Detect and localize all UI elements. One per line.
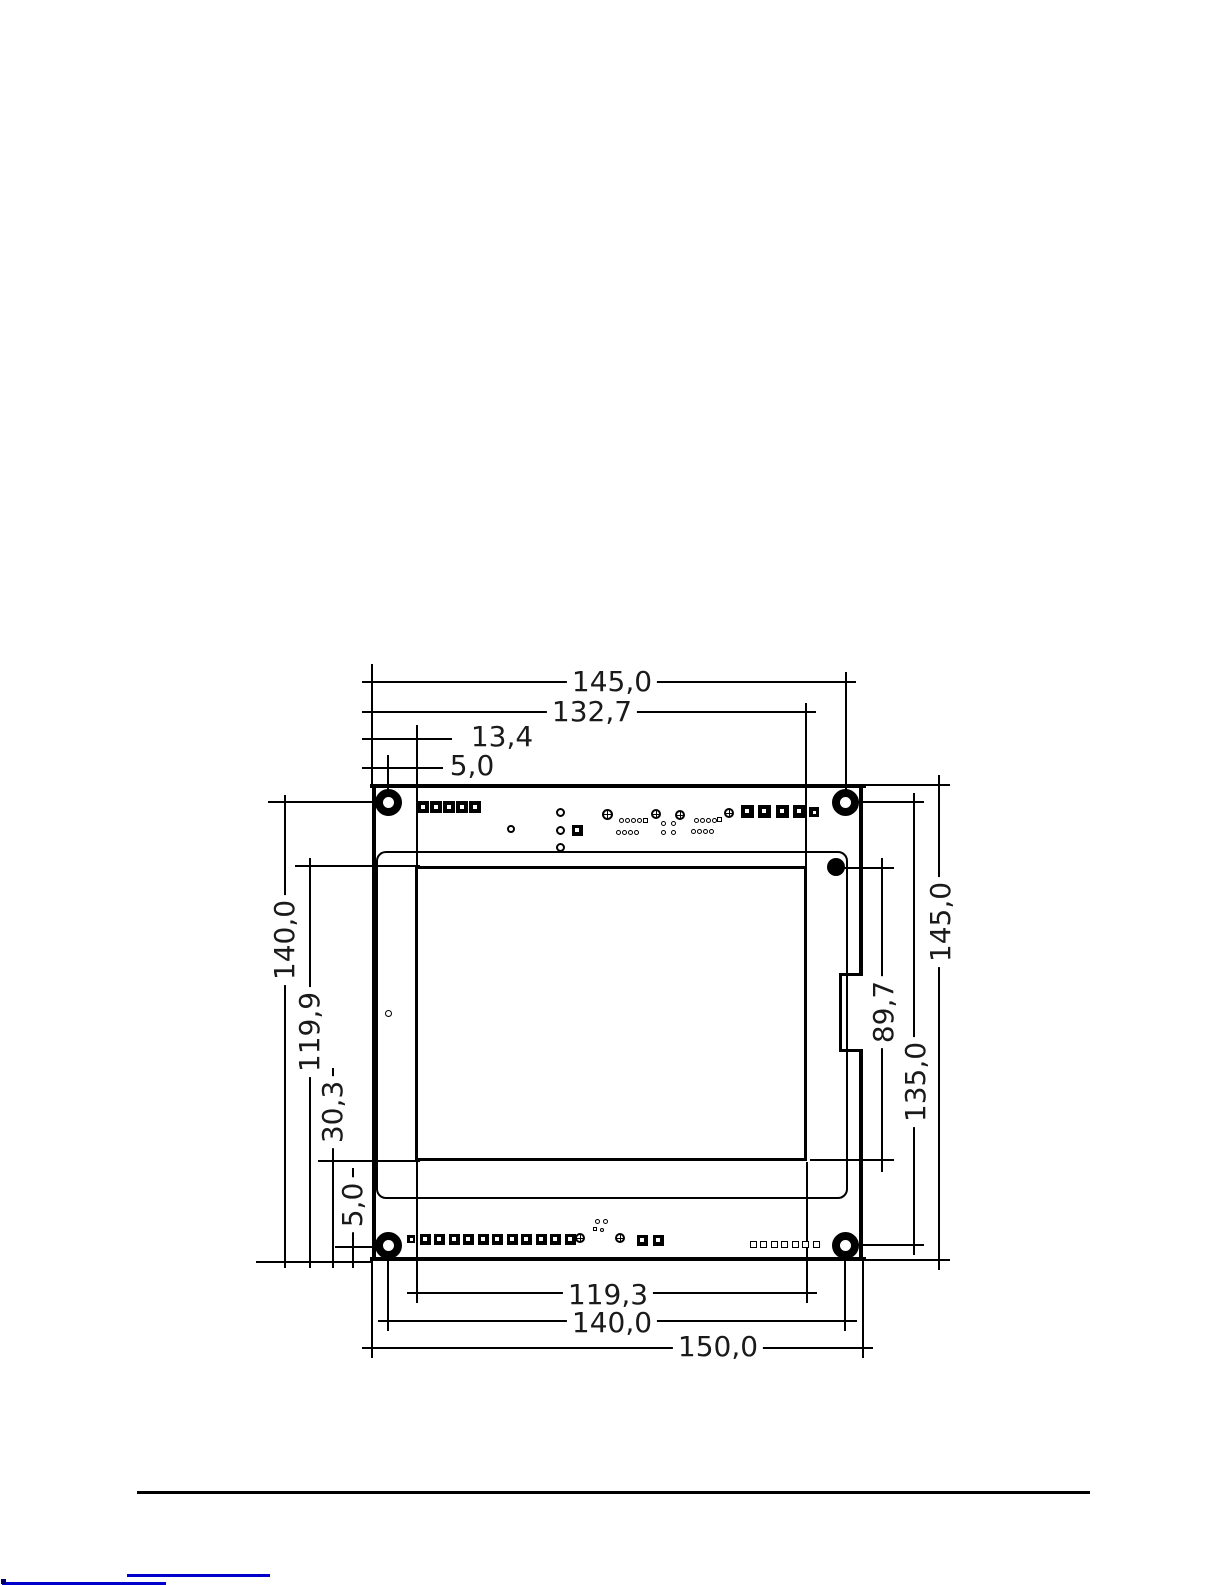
pad-round — [556, 808, 565, 817]
pad-round — [556, 826, 565, 835]
pad-square — [492, 1234, 503, 1245]
pad-square — [572, 825, 583, 836]
pad-hole — [421, 805, 425, 809]
via-square — [643, 818, 648, 823]
pad-square — [653, 1235, 664, 1246]
pad-hole — [473, 805, 477, 809]
ext-line — [806, 1162, 808, 1303]
pad-square — [430, 801, 442, 813]
dim-label-top-active-right: 132,7 — [547, 697, 637, 727]
board-edge-bottom — [370, 1257, 866, 1261]
via — [628, 830, 633, 835]
via — [671, 830, 676, 835]
pad-square — [469, 801, 481, 813]
board-edge-top — [370, 784, 866, 788]
pad-hole — [568, 1237, 572, 1241]
pad-hole — [539, 1237, 543, 1241]
via — [631, 818, 636, 823]
active-area-outline — [415, 866, 807, 1161]
via-square — [717, 817, 722, 822]
pad-square-small — [781, 1241, 788, 1248]
dim-label-top-hole-offset: 5,0 — [445, 751, 500, 781]
pad-round — [556, 843, 565, 852]
pad-hole — [466, 1237, 470, 1241]
pad-hole — [510, 1237, 514, 1241]
mounting-hole — [832, 789, 859, 816]
pad-square-small — [750, 1241, 757, 1248]
dim-label-top-active-left: 13,4 — [466, 722, 538, 752]
ext-line — [416, 1162, 418, 1303]
pad-square — [407, 1235, 415, 1243]
pad-cross-line — [580, 1235, 581, 1241]
mounting-hole — [375, 1232, 402, 1259]
dim-line-top-13-4 — [362, 738, 452, 740]
dim-label-left-active-bottom: 30,3 — [318, 1076, 348, 1148]
pad-hole — [423, 1237, 427, 1241]
pad-square — [449, 1234, 460, 1245]
ext-line — [256, 1261, 372, 1263]
pad-cross-line — [729, 810, 730, 816]
dim-label-left-active-top: 119,9 — [295, 987, 325, 1077]
pad-square — [809, 807, 819, 817]
pad-square — [776, 805, 789, 818]
pad-hole — [481, 1237, 485, 1241]
pad-crosshair — [675, 810, 685, 820]
pad-hole — [460, 805, 464, 809]
footer-link-underline[interactable] — [127, 1574, 270, 1577]
pad-square-small — [792, 1241, 799, 1248]
via — [622, 830, 627, 835]
via — [637, 818, 642, 823]
pad-square-small — [760, 1241, 767, 1248]
via — [661, 821, 666, 826]
dim-label-left-hole-span: 140,0 — [270, 895, 300, 985]
dim-line-right-145 — [938, 775, 940, 1270]
pad-hole — [745, 809, 749, 813]
pad-square — [741, 805, 754, 818]
pad-square — [550, 1234, 561, 1245]
pad-square — [758, 805, 771, 818]
pad-crosshair — [615, 1233, 625, 1243]
via — [619, 818, 624, 823]
via — [625, 818, 630, 823]
pad-square — [434, 1234, 445, 1245]
pad-square-small — [813, 1241, 820, 1248]
pad-round — [507, 825, 515, 833]
pad-hole — [762, 809, 766, 813]
pad-hole — [452, 1237, 456, 1241]
pad-cross-line — [607, 811, 608, 818]
via-square — [593, 1227, 597, 1231]
small-hole — [385, 1010, 392, 1017]
alignment-dot — [827, 858, 845, 876]
pad-square — [793, 805, 806, 818]
pad-hole — [640, 1238, 644, 1242]
via — [709, 829, 714, 834]
board-edge-right-lower — [859, 1049, 863, 1261]
pad-hole — [434, 805, 438, 809]
pad-square — [443, 801, 455, 813]
pad-hole — [553, 1237, 557, 1241]
via — [700, 818, 705, 823]
pad-hole — [797, 809, 801, 813]
ext-line — [862, 1261, 864, 1358]
pad-cross-line — [656, 811, 657, 817]
pad-square — [637, 1235, 648, 1246]
dim-line-bottom-150 — [362, 1347, 873, 1349]
pad-square-small — [771, 1241, 778, 1248]
pad-hole — [495, 1237, 499, 1241]
ext-line — [845, 672, 847, 800]
dim-line-right-135 — [913, 793, 915, 1255]
via — [603, 1219, 608, 1224]
dim-label-right-hole-span: 135,0 — [901, 1037, 931, 1127]
via — [595, 1219, 600, 1224]
board-edge-right-upper — [859, 784, 863, 975]
dim-label-left-hole-offset: 5,0 — [338, 1178, 368, 1233]
via — [697, 829, 702, 834]
ext-line — [295, 865, 420, 867]
mounting-hole — [375, 789, 402, 816]
pad-square — [521, 1234, 532, 1245]
pad-square — [565, 1234, 576, 1245]
pad-square — [456, 801, 468, 813]
pad-crosshair — [651, 809, 661, 819]
via — [600, 1228, 604, 1232]
ext-line — [805, 703, 807, 866]
dim-label-right-active-height: 89,7 — [869, 976, 899, 1048]
pad-crosshair — [602, 809, 613, 820]
pad-hole — [437, 1237, 441, 1241]
pad-hole — [524, 1237, 528, 1241]
pad-square — [507, 1234, 518, 1245]
via — [671, 821, 676, 826]
dim-label-bottom-board-width: 150,0 — [673, 1332, 763, 1362]
pad-crosshair — [724, 808, 734, 818]
via — [616, 830, 621, 835]
mounting-hole — [832, 1232, 859, 1259]
via — [703, 829, 708, 834]
ext-line — [416, 725, 418, 866]
pad-square — [478, 1234, 489, 1245]
ext-line — [371, 1261, 373, 1358]
pad-crosshair — [575, 1233, 585, 1243]
pad-hole — [575, 828, 579, 832]
ext-line — [843, 867, 894, 869]
page: 145,0132,713,45,0140,0119,930,35,089,713… — [0, 0, 1225, 1585]
ext-line — [844, 1248, 846, 1331]
footer-divider — [137, 1491, 1090, 1494]
pad-square-small — [802, 1241, 809, 1248]
pad-hole — [447, 805, 451, 809]
dim-line-left-140 — [284, 795, 286, 1268]
dim-line-top-5-0 — [362, 767, 443, 769]
dim-label-bottom-hole-span: 140,0 — [567, 1308, 657, 1338]
ext-line — [387, 1248, 389, 1331]
pad-hole — [410, 1238, 413, 1241]
footer-link-cut-mark — [1, 1579, 6, 1584]
pad-hole — [813, 811, 816, 814]
via — [661, 830, 666, 835]
via — [634, 830, 639, 835]
pad-hole — [780, 809, 784, 813]
pad-cross-line — [620, 1235, 621, 1241]
pad-square — [463, 1234, 474, 1245]
pad-square — [417, 801, 429, 813]
via — [694, 818, 699, 823]
pad-square — [536, 1234, 547, 1245]
via — [706, 818, 711, 823]
pad-square — [420, 1234, 431, 1245]
pad-hole — [656, 1238, 660, 1242]
footer-link-cut-text[interactable] — [2, 1582, 166, 1585]
dim-label-right-board-height: 145,0 — [926, 877, 956, 967]
pad-cross-line — [680, 812, 681, 818]
dim-label-top-overall: 145,0 — [567, 667, 657, 697]
dimension-drawing: 145,0132,713,45,0140,0119,930,35,089,713… — [0, 0, 1225, 1585]
via — [691, 829, 696, 834]
